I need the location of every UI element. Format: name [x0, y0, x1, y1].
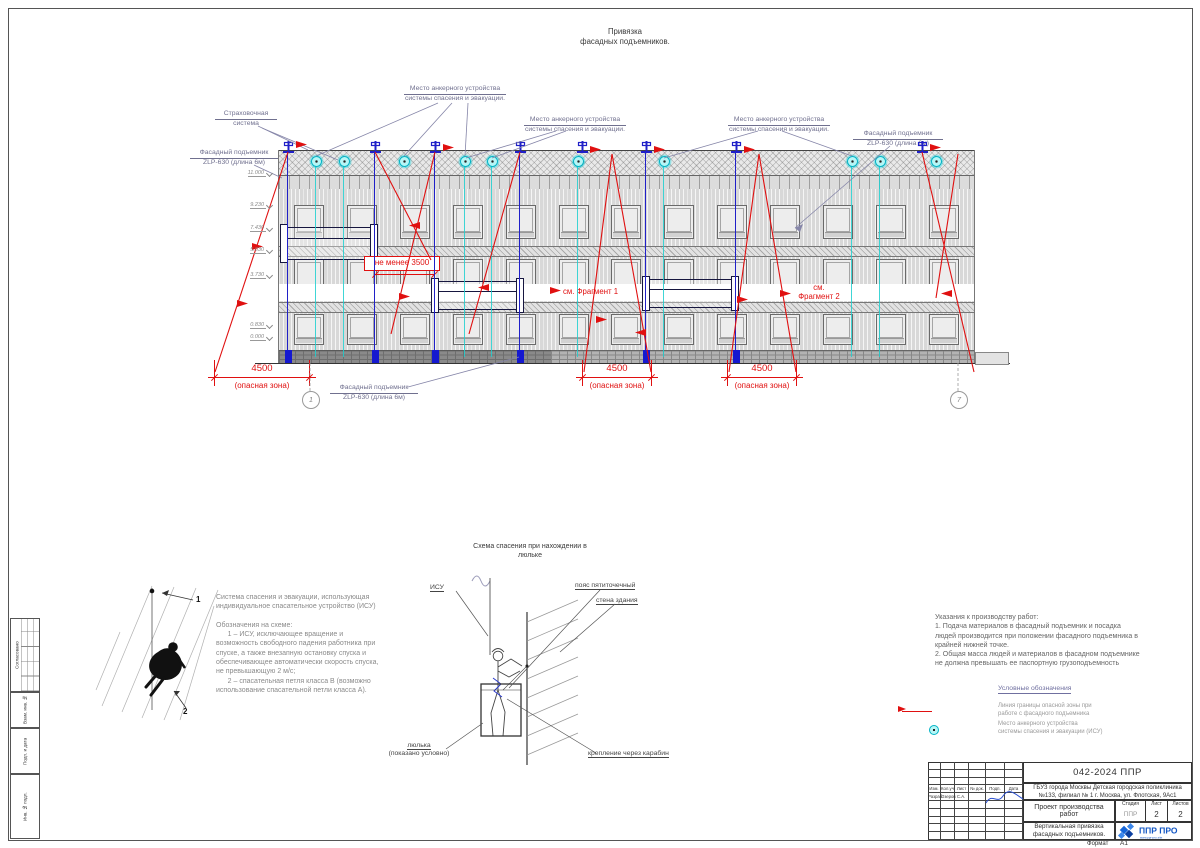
- signature: [984, 790, 1026, 810]
- elevation-mark: 9.230: [224, 202, 272, 209]
- elevation-mark: 0.830: [224, 322, 272, 329]
- elevation-mark: 11.000: [224, 170, 272, 177]
- drawing-sheet: Согласовано Взам. инв. № Подп. и дата Ин…: [0, 0, 1200, 848]
- elevation-mark: 3.730: [224, 272, 272, 279]
- elevation-mark: 7.430: [224, 225, 272, 232]
- elevation-mark: 5.030: [224, 247, 272, 254]
- elevation-mark: 0.000: [224, 334, 272, 341]
- lines-overlay: [0, 0, 1200, 848]
